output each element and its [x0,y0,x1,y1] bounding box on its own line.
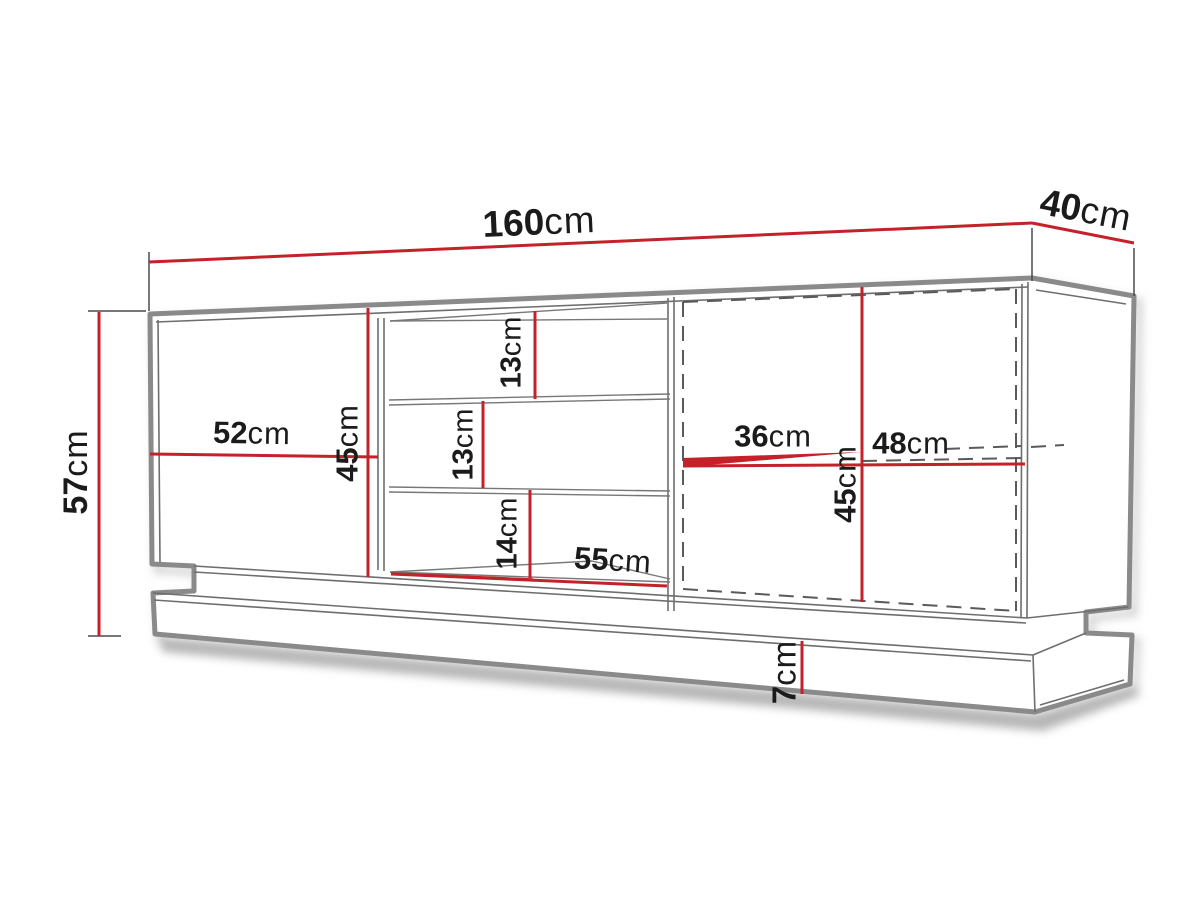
dim-label-right-door-height: 45cm [830,445,861,523]
dim-label-shelf-bottom: 14cm [494,497,523,570]
dim-value: 55 [573,540,610,577]
dim-label-shelf-middle: 13cm [450,408,479,481]
dim-unit: cm [448,408,480,449]
dim-unit: cm [769,419,812,454]
dim-value: 52 [213,415,248,451]
dim-label-plinth-height: 7cm [768,640,801,704]
dim-unit: cm [57,429,95,476]
cabinet-line-drawing [0,0,1200,899]
dim-value: 45 [330,447,365,481]
dim-label-left-door-height: 45cm [332,404,363,482]
dim-unit: cm [492,497,524,538]
dim-value: 45 [828,488,863,522]
dim-value: 36 [734,419,768,454]
dim-unit: cm [330,404,365,447]
dim-label-inner-depth: 36cm [734,421,812,452]
dim-label-total-width: 160cm [482,201,597,243]
dim-value: 13 [448,448,480,480]
dim-unit: cm [828,445,863,488]
dim-unit: cm [907,426,950,461]
dim-value: 7 [766,686,803,704]
dim-unit: cm [247,415,291,451]
dim-unit: cm [543,199,596,242]
dim-value: 48 [872,426,906,461]
dim-value: 14 [492,537,524,569]
dim-label-shelf-top: 13cm [498,316,527,389]
dim-unit: cm [766,640,803,686]
dim-unit: cm [496,316,528,357]
dim-value: 57 [57,477,95,515]
dim-label-total-height: 57cm [59,429,93,514]
dim-unit: cm [608,542,653,580]
dim-value: 13 [496,356,528,388]
dim-label-bay-width: 55cm [573,542,653,578]
dim-value: 160 [482,201,546,245]
dim-label-left-door-width: 52cm [213,417,291,449]
furniture-dimension-diagram: 160cm 40cm 57cm 52cm 45cm 13cm 13cm 14cm… [0,0,1200,899]
dim-label-right-door-width: 48cm [872,428,950,459]
